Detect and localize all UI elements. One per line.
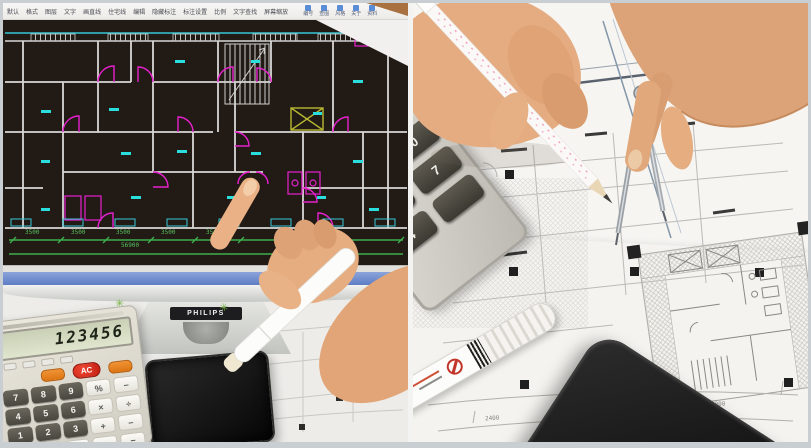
philips-logo: PHILIPS xyxy=(170,307,242,320)
door-swings xyxy=(63,66,348,228)
dimension-label: 7000 xyxy=(308,229,322,236)
dimension-total-label: 56900 xyxy=(121,242,139,249)
monitor-stand-neck xyxy=(183,322,229,344)
calc-key: = xyxy=(120,431,147,442)
cad-menu-bar: 默认 格式 图层 文字 画直线 住宅线 编辑 隐藏标注 标注设置 比例 文字查找… xyxy=(3,3,408,20)
cad-menu-item: 文字 xyxy=(64,7,76,16)
calc-key: 5 xyxy=(32,404,59,423)
dimension-lines xyxy=(9,237,404,254)
photo-collage: 默认 格式 图层 文字 画直线 住宅线 编辑 隐藏标注 标注设置 比例 文字查找… xyxy=(0,0,811,448)
calc-key: − xyxy=(113,375,140,394)
calc-key: × xyxy=(88,397,115,416)
calc-key: − xyxy=(117,412,144,431)
calc-key: 6 xyxy=(60,400,87,419)
cad-menu-item: 画直线 xyxy=(83,7,101,16)
marker-label-line xyxy=(419,376,443,391)
blueprint-dimension: 2400 xyxy=(485,415,500,423)
cad-menu-item: 屏幕缩放 xyxy=(264,7,288,16)
cad-tool: 风格 xyxy=(335,5,345,17)
cad-menu-item: 图层 xyxy=(45,7,57,16)
elevator-shaft xyxy=(291,108,323,130)
cad-menu-item: 比例 xyxy=(214,7,226,16)
dimension-label: 3500 xyxy=(206,229,220,236)
cad-menu-item: 隐藏标注 xyxy=(152,7,176,16)
cad-tool: 资料 xyxy=(367,5,377,17)
calculator: 123456 AC 7 8 9 % − 4 5 6 × ÷ 1 2 3 xyxy=(3,304,153,442)
monitor-stand: PHILIPS xyxy=(121,302,291,354)
cad-menu-item: 住宅线 xyxy=(108,7,126,16)
photo-frame: 默认 格式 图层 文字 画直线 住宅线 编辑 隐藏标注 标注设置 比例 文字查找… xyxy=(3,3,808,442)
cad-menu-item: 标注设置 xyxy=(183,7,207,16)
calc-key: + xyxy=(90,416,117,435)
dimension-label: 3500 xyxy=(161,229,175,236)
calc-key: · xyxy=(37,441,64,442)
calculator-orange-key xyxy=(40,367,65,382)
calc-key xyxy=(65,438,92,442)
dimension-label: 3500 xyxy=(71,229,85,236)
cad-tool: 编号 xyxy=(303,5,313,17)
cad-tool: 查图 xyxy=(319,5,329,17)
calculator-ac-key: AC xyxy=(72,361,102,379)
cad-menu-item: 默认 xyxy=(7,7,19,16)
calc-key: 3 xyxy=(62,419,89,438)
calc-key: 2 xyxy=(35,423,62,442)
calc-key: 7 xyxy=(3,388,29,407)
calc-key xyxy=(92,435,119,442)
dimension-label: 3500 xyxy=(116,229,130,236)
stairs xyxy=(225,44,269,104)
calc-key: 1 xyxy=(7,426,34,442)
dimension-label: 3500 xyxy=(25,229,39,236)
smartphone xyxy=(144,350,276,442)
calc-key: 4 xyxy=(5,407,32,426)
cad-command-bar xyxy=(3,272,408,285)
cad-menu-item: 编辑 xyxy=(133,7,145,16)
calc-key: 4 xyxy=(413,209,439,261)
calc-key: % xyxy=(85,378,112,397)
left-photo-cad-workstation: 默认 格式 图层 文字 画直线 住宅线 编辑 隐藏标注 标注设置 比例 文字查找… xyxy=(3,3,408,442)
calc-key: 9 xyxy=(58,381,85,400)
cad-tool: 关于 xyxy=(351,5,361,17)
right-photo-drafting-table: 2400 9000 30700 0 0 1 7 4 xyxy=(413,3,808,442)
calc-key: ÷ xyxy=(115,394,142,413)
calc-key: 8 xyxy=(30,385,57,404)
calculator-orange-key xyxy=(108,359,133,374)
cad-menu-item: 格式 xyxy=(26,7,38,16)
cad-toolbar-icons: 编号 查图 风格 关于 资料 xyxy=(303,5,377,17)
marker-logo xyxy=(444,356,466,378)
cad-menu-item: 文字查找 xyxy=(233,7,257,16)
cad-monitor-screen: 3500 3500 3500 3500 3500 7000 56900 xyxy=(3,20,408,265)
monitor-bezel xyxy=(3,285,408,302)
